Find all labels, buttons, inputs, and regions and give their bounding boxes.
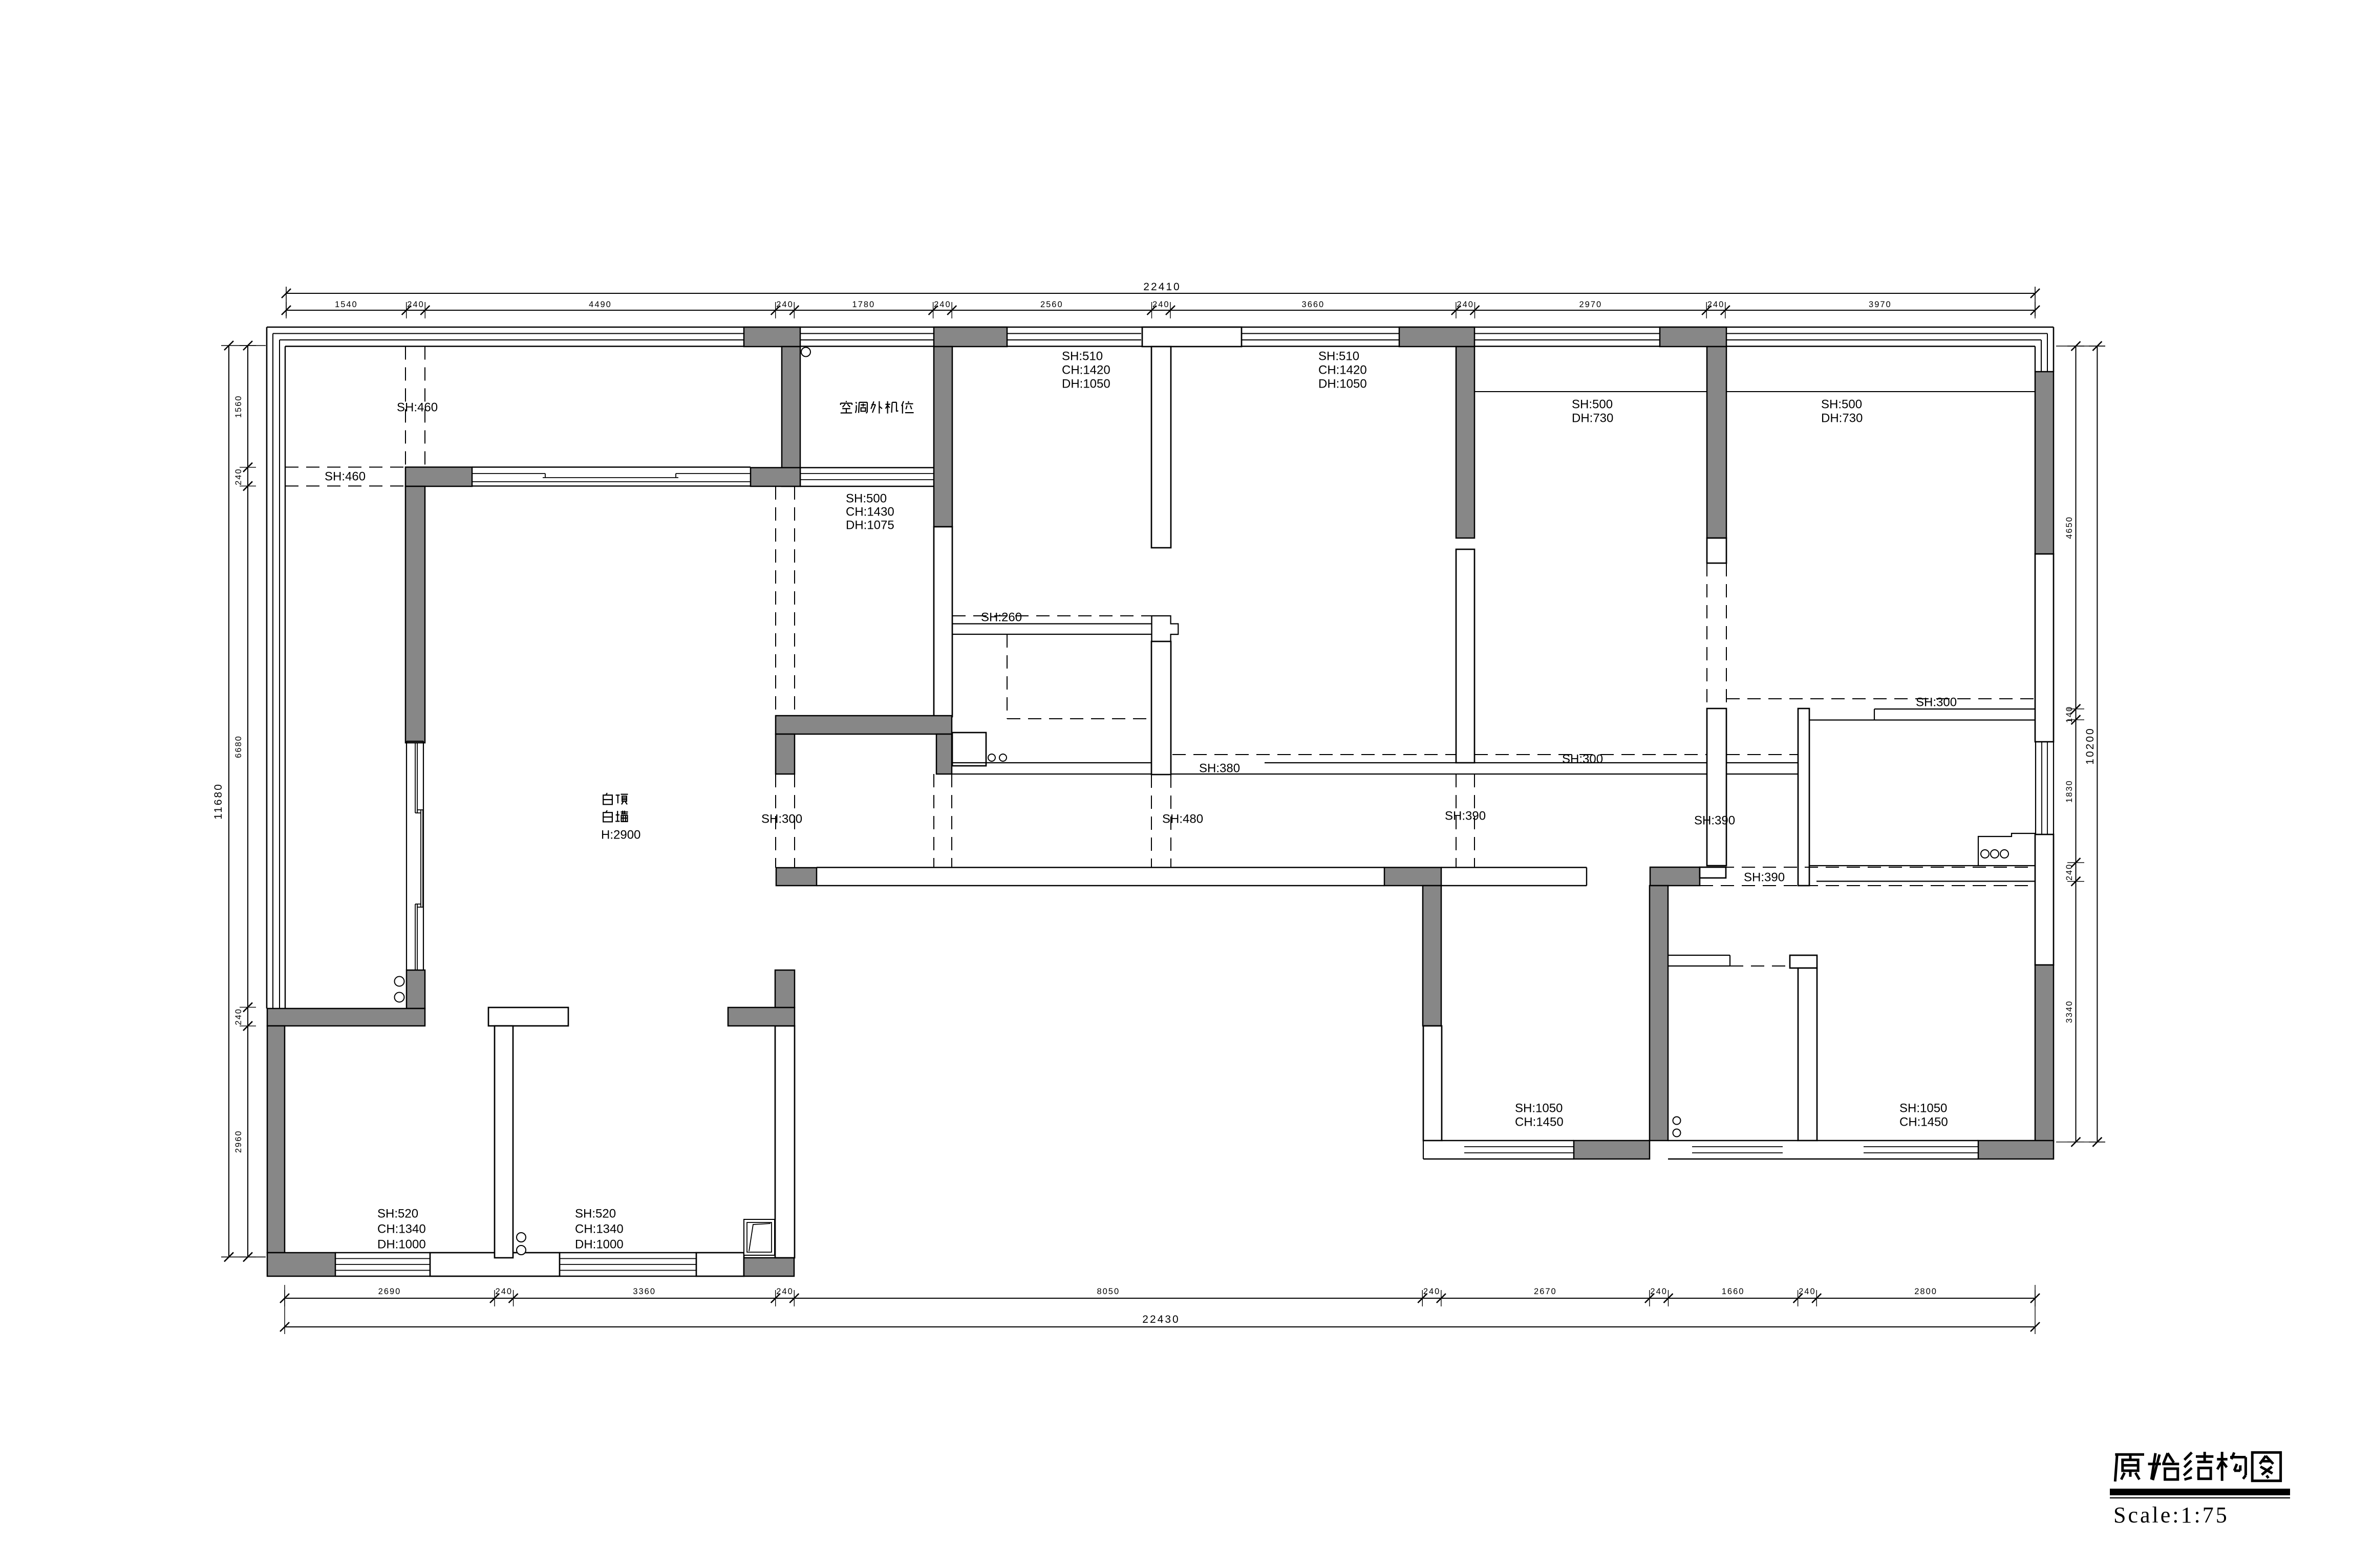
svg-text:3360: 3360 xyxy=(633,1287,656,1296)
svg-text:SH:500: SH:500 xyxy=(1821,397,1862,411)
svg-text:SH:1050: SH:1050 xyxy=(1515,1101,1563,1115)
svg-text:DH:730: DH:730 xyxy=(1572,411,1613,425)
svg-text:240: 240 xyxy=(1650,1287,1667,1296)
svg-text:Scale:1:75: Scale:1:75 xyxy=(2113,1502,2229,1528)
svg-text:240: 240 xyxy=(776,300,794,309)
svg-text:CH:1420: CH:1420 xyxy=(1062,363,1110,377)
svg-text:H:2900: H:2900 xyxy=(601,828,640,842)
svg-text:2560: 2560 xyxy=(1040,300,1063,309)
svg-text:SH:390: SH:390 xyxy=(1744,870,1785,884)
svg-text:SH:500: SH:500 xyxy=(846,491,887,505)
svg-text:SH:510: SH:510 xyxy=(1062,349,1103,363)
svg-text:SH:500: SH:500 xyxy=(1572,397,1613,411)
svg-text:3660: 3660 xyxy=(1302,300,1325,309)
svg-text:22430: 22430 xyxy=(1142,1314,1180,1325)
svg-text:4650: 4650 xyxy=(2065,516,2074,539)
svg-text:CH:1340: CH:1340 xyxy=(575,1222,624,1236)
svg-text:SH:260: SH:260 xyxy=(981,610,1022,624)
svg-text:CH:1450: CH:1450 xyxy=(1515,1115,1564,1129)
svg-text:2960: 2960 xyxy=(234,1130,243,1153)
svg-text:240: 240 xyxy=(234,1008,243,1025)
svg-text:240: 240 xyxy=(776,1287,794,1296)
svg-text:1780: 1780 xyxy=(852,300,875,309)
svg-text:DH:1050: DH:1050 xyxy=(1062,377,1110,391)
svg-text:10200: 10200 xyxy=(2084,727,2096,764)
svg-text:CH:1420: CH:1420 xyxy=(1318,363,1367,377)
svg-text:SH:380: SH:380 xyxy=(1199,761,1240,775)
svg-text:1830: 1830 xyxy=(2065,780,2074,803)
svg-text:240: 240 xyxy=(1152,300,1170,309)
svg-text:240: 240 xyxy=(1457,300,1474,309)
svg-text:SH:390: SH:390 xyxy=(1445,809,1486,823)
svg-text:3970: 3970 xyxy=(1869,300,1892,309)
svg-text:2670: 2670 xyxy=(1534,1287,1557,1296)
svg-text:SH:300: SH:300 xyxy=(1562,752,1603,766)
svg-text:8050: 8050 xyxy=(1097,1287,1120,1296)
svg-text:2690: 2690 xyxy=(378,1287,401,1296)
svg-text:140: 140 xyxy=(2065,706,2074,723)
svg-text:240: 240 xyxy=(1423,1287,1441,1296)
svg-text:CH:1340: CH:1340 xyxy=(377,1222,426,1236)
svg-text:SH:300: SH:300 xyxy=(761,812,802,826)
svg-text:DH:1000: DH:1000 xyxy=(377,1237,426,1251)
svg-text:SH:300: SH:300 xyxy=(1916,695,1957,709)
svg-text:SH:520: SH:520 xyxy=(575,1207,616,1220)
svg-text:3340: 3340 xyxy=(2065,1000,2074,1023)
svg-text:240: 240 xyxy=(934,300,951,309)
svg-text:DH:730: DH:730 xyxy=(1821,411,1863,425)
svg-text:1540: 1540 xyxy=(335,300,358,309)
svg-text:1560: 1560 xyxy=(234,395,243,418)
svg-text:240: 240 xyxy=(234,468,243,485)
svg-text:240: 240 xyxy=(2065,864,2074,881)
svg-text:2970: 2970 xyxy=(1579,300,1602,309)
svg-text:SH:510: SH:510 xyxy=(1318,349,1359,363)
svg-text:SH:1050: SH:1050 xyxy=(1899,1101,1947,1115)
svg-text:SH:480: SH:480 xyxy=(1162,812,1203,826)
svg-text:SH:390: SH:390 xyxy=(1694,813,1735,827)
svg-text:DH:1075: DH:1075 xyxy=(846,518,894,532)
svg-text:1660: 1660 xyxy=(1722,1287,1745,1296)
svg-text:CH:1450: CH:1450 xyxy=(1899,1115,1948,1129)
svg-text:CH:1430: CH:1430 xyxy=(846,505,894,519)
svg-text:SH:460: SH:460 xyxy=(397,400,438,414)
svg-text:SH:460: SH:460 xyxy=(325,469,366,483)
svg-text:240: 240 xyxy=(496,1287,513,1296)
svg-text:SH:520: SH:520 xyxy=(377,1207,418,1220)
svg-text:11680: 11680 xyxy=(212,783,224,820)
svg-text:2800: 2800 xyxy=(1914,1287,1937,1296)
svg-text:240: 240 xyxy=(1799,1287,1816,1296)
svg-text:240: 240 xyxy=(1707,300,1725,309)
svg-text:22410: 22410 xyxy=(1143,281,1181,293)
svg-text:240: 240 xyxy=(407,300,424,309)
svg-text:4490: 4490 xyxy=(589,300,612,309)
svg-text:DH:1000: DH:1000 xyxy=(575,1237,624,1251)
svg-text:DH:1050: DH:1050 xyxy=(1318,377,1367,391)
svg-text:6680: 6680 xyxy=(234,735,243,758)
